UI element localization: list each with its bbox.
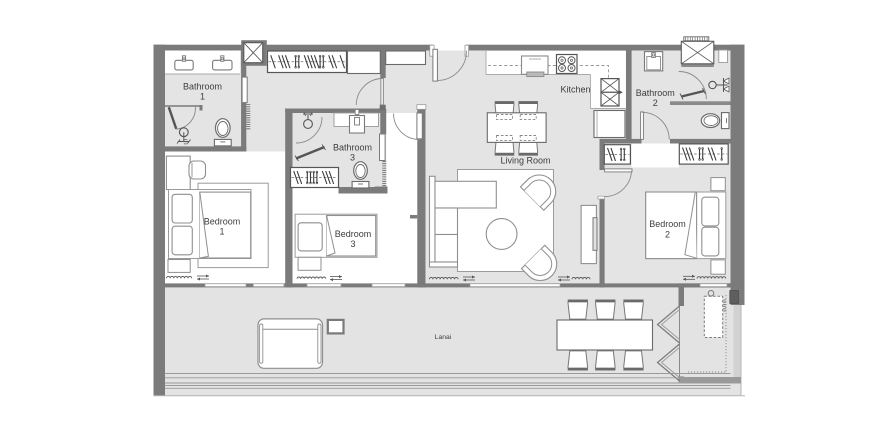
svg-text:Living Room: Living Room (500, 156, 550, 166)
svg-text:Kitchen: Kitchen (560, 85, 590, 95)
svg-text:2: 2 (653, 98, 658, 108)
svg-text:Bedroom: Bedroom (649, 219, 686, 229)
svg-text:Bathroom: Bathroom (333, 143, 372, 153)
svg-text:2: 2 (665, 230, 670, 240)
svg-text:Lanai: Lanai (435, 334, 452, 341)
svg-text:1: 1 (200, 92, 205, 102)
svg-text:3: 3 (350, 153, 355, 163)
svg-text:Bathroom: Bathroom (636, 88, 675, 98)
svg-text:1: 1 (219, 227, 224, 237)
svg-text:Bedroom: Bedroom (335, 229, 372, 239)
svg-text:3: 3 (350, 239, 355, 249)
svg-text:Bathroom: Bathroom (183, 82, 222, 92)
svg-text:Bedroom: Bedroom (204, 217, 241, 227)
